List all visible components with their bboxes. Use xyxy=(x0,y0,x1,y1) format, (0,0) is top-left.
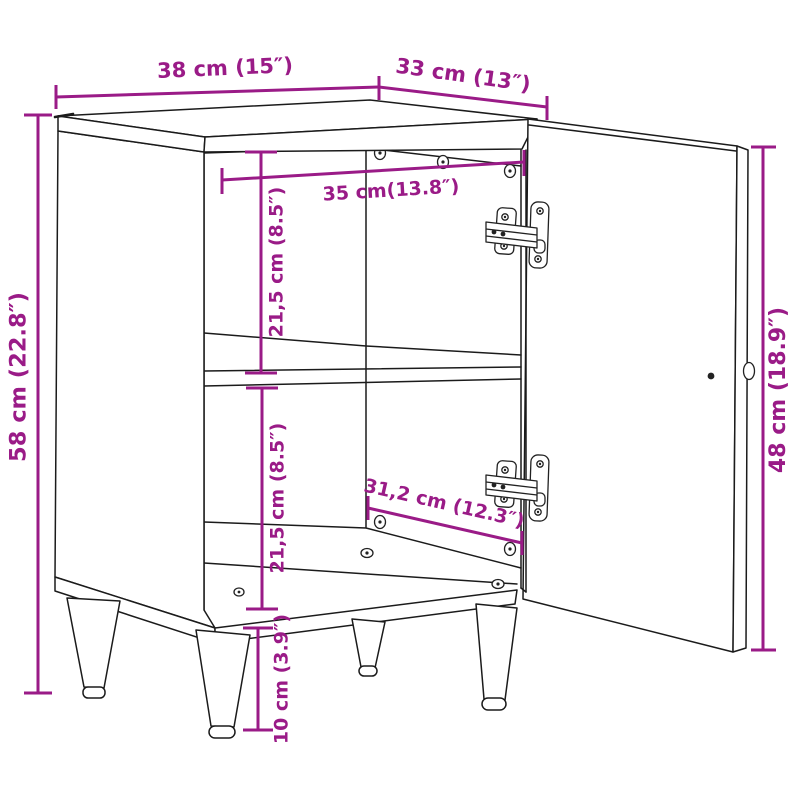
screw xyxy=(505,165,516,178)
shelf-back-junction xyxy=(204,333,521,355)
dim-label-interior-width: 35 cm(13.8″) xyxy=(322,175,460,205)
screw xyxy=(375,516,386,529)
dim-lower-compartment-height: 21,5 cm (8.5″) xyxy=(246,388,289,609)
cabinet-interior xyxy=(204,147,521,611)
dim-label-leg-height: 10 cm (3.9″) xyxy=(271,614,293,744)
screw xyxy=(361,549,373,558)
diagram-canvas: 38 cm (15″) 33 cm (13″) 58 cm (22.8″) 35… xyxy=(0,0,800,800)
leg-front-right xyxy=(476,604,517,710)
left-side-panel xyxy=(55,131,215,628)
door-panel xyxy=(523,119,755,652)
leg-back-left xyxy=(67,598,120,698)
door-knob xyxy=(744,363,755,380)
screw xyxy=(234,588,244,596)
screw xyxy=(492,580,504,589)
door-screw xyxy=(708,373,715,380)
dim-top-width: 38 cm (15″) xyxy=(56,53,379,109)
dim-label-upper-compartment: 21,5 cm (8.5″) xyxy=(266,187,288,338)
dim-label-top-width: 38 cm (15″) xyxy=(157,53,294,83)
shelf-front-top-edge xyxy=(204,367,521,371)
screw xyxy=(505,543,516,556)
cabinet-dimension-diagram: 38 cm (15″) 33 cm (13″) 58 cm (22.8″) 35… xyxy=(0,0,800,800)
dim-door-height: 48 cm (18.9″) xyxy=(751,147,791,650)
hinge-top xyxy=(486,202,549,269)
shelf-front-bottom-edge xyxy=(204,379,521,386)
dim-label-overall-height: 58 cm (22.8″) xyxy=(6,292,32,462)
leg-back-right xyxy=(352,619,385,676)
leg-front-left xyxy=(196,630,250,738)
door-face xyxy=(523,119,737,652)
dim-overall-height: 58 cm (22.8″) xyxy=(6,115,53,693)
floor-back-junction xyxy=(204,522,521,568)
shelf xyxy=(204,333,521,386)
dim-label-lower-compartment: 21,5 cm (8.5″) xyxy=(267,423,289,574)
dim-label-door-height: 48 cm (18.9″) xyxy=(766,307,791,473)
floor-front-edge xyxy=(204,563,517,584)
